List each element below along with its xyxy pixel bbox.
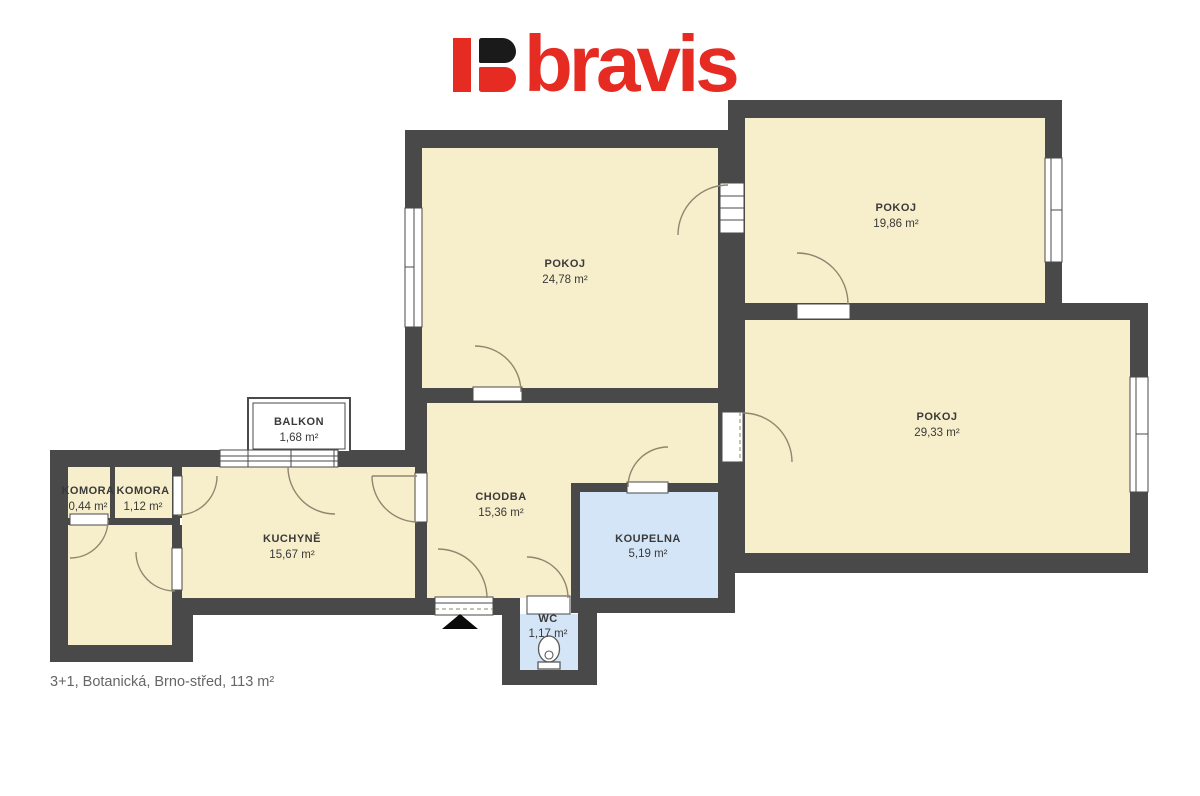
door-chodba-kuchyne (415, 473, 427, 522)
door-chodba-pokoj1 (473, 387, 522, 401)
label-balkon-area: 1,68 m² (280, 432, 319, 444)
label-chodba-area: 15,36 m² (478, 507, 524, 519)
label-koupelna-area: 5,19 m² (629, 548, 668, 560)
label-chodba-name: CHODBA (475, 491, 526, 503)
door-komora2-kuchyne (173, 476, 182, 515)
label-kuchyne-area: 15,67 m² (269, 549, 315, 561)
label-pokoj-1-name: POKOJ (544, 258, 585, 270)
label-kuchyne-name: KUCHYNĚ (263, 532, 321, 545)
door-pokoj1-pokoj2 (720, 183, 744, 233)
door-chodba-pokoj3 (722, 412, 743, 462)
label-wc-area: 1,17 m² (529, 628, 568, 640)
label-pokoj-3-area: 29,33 m² (914, 427, 960, 439)
label-komora-2-name: KOMORA (116, 485, 169, 497)
label-koupelna-name: KOUPELNA (615, 533, 681, 545)
balcony-window-kitchen (220, 450, 338, 467)
window-pokoj-1 (405, 208, 422, 327)
entrance-arrow-icon (442, 614, 478, 629)
door-kuchyne-vestibule (172, 548, 182, 590)
label-balkon-name: BALKON (274, 416, 324, 428)
label-pokoj-1-area: 24,78 m² (542, 274, 588, 286)
label-pokoj-2-area: 19,86 m² (873, 218, 919, 230)
door-komora1-vestibule (70, 514, 108, 525)
window-pokoj-3 (1130, 377, 1148, 492)
room-vestibule (68, 525, 172, 645)
floorplan-page: bravis (0, 0, 1200, 796)
door-chodba-wc (527, 596, 570, 614)
door-pokoj2-pokoj3 (797, 304, 850, 319)
listing-caption: 3+1, Botanická, Brno-střed, 113 m² (50, 674, 274, 690)
label-komora-1-name: KOMORA (61, 485, 114, 497)
label-komora-1-area: 0,44 m² (69, 501, 108, 513)
room-koupelna (580, 492, 718, 598)
label-pokoj-3-name: POKOJ (916, 411, 957, 423)
door-chodba-koupelna (627, 482, 668, 493)
toilet-icon (538, 636, 560, 669)
label-pokoj-2-name: POKOJ (875, 202, 916, 214)
label-wc-name: WC (538, 613, 557, 625)
window-pokoj-2 (1045, 158, 1062, 262)
label-komora-2-area: 1,12 m² (124, 501, 163, 513)
entrance-door (435, 597, 493, 615)
